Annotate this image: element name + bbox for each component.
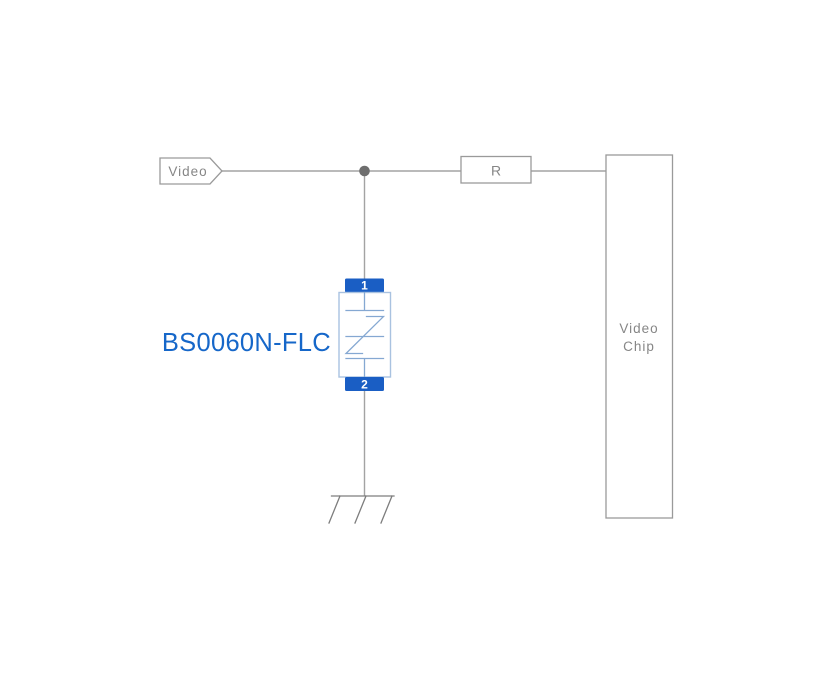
resistor: R — [461, 157, 531, 184]
video-chip-label-line2: Chip — [623, 339, 655, 354]
video-signal-tag: Video — [160, 158, 222, 184]
schematic-canvas: Video R Video Chip 1 2 BS0060N-FLC — [0, 0, 832, 675]
ground-icon — [329, 496, 394, 523]
video-tag-label: Video — [168, 164, 207, 179]
video-chip-outline — [606, 155, 673, 518]
tvs-pin2-number: 2 — [361, 378, 368, 392]
video-chip-block: Video Chip — [606, 155, 673, 518]
tvs-pin1-number: 1 — [361, 279, 368, 293]
circuit-diagram: Video R Video Chip 1 2 BS0060N-FLC — [0, 0, 832, 675]
tvs-part-number-label: BS0060N-FLC — [162, 329, 331, 357]
resistor-label: R — [491, 163, 501, 179]
junction-dot-icon — [359, 166, 370, 177]
video-chip-label-line1: Video — [619, 321, 658, 336]
tvs-device: 1 2 BS0060N-FLC — [162, 279, 391, 392]
